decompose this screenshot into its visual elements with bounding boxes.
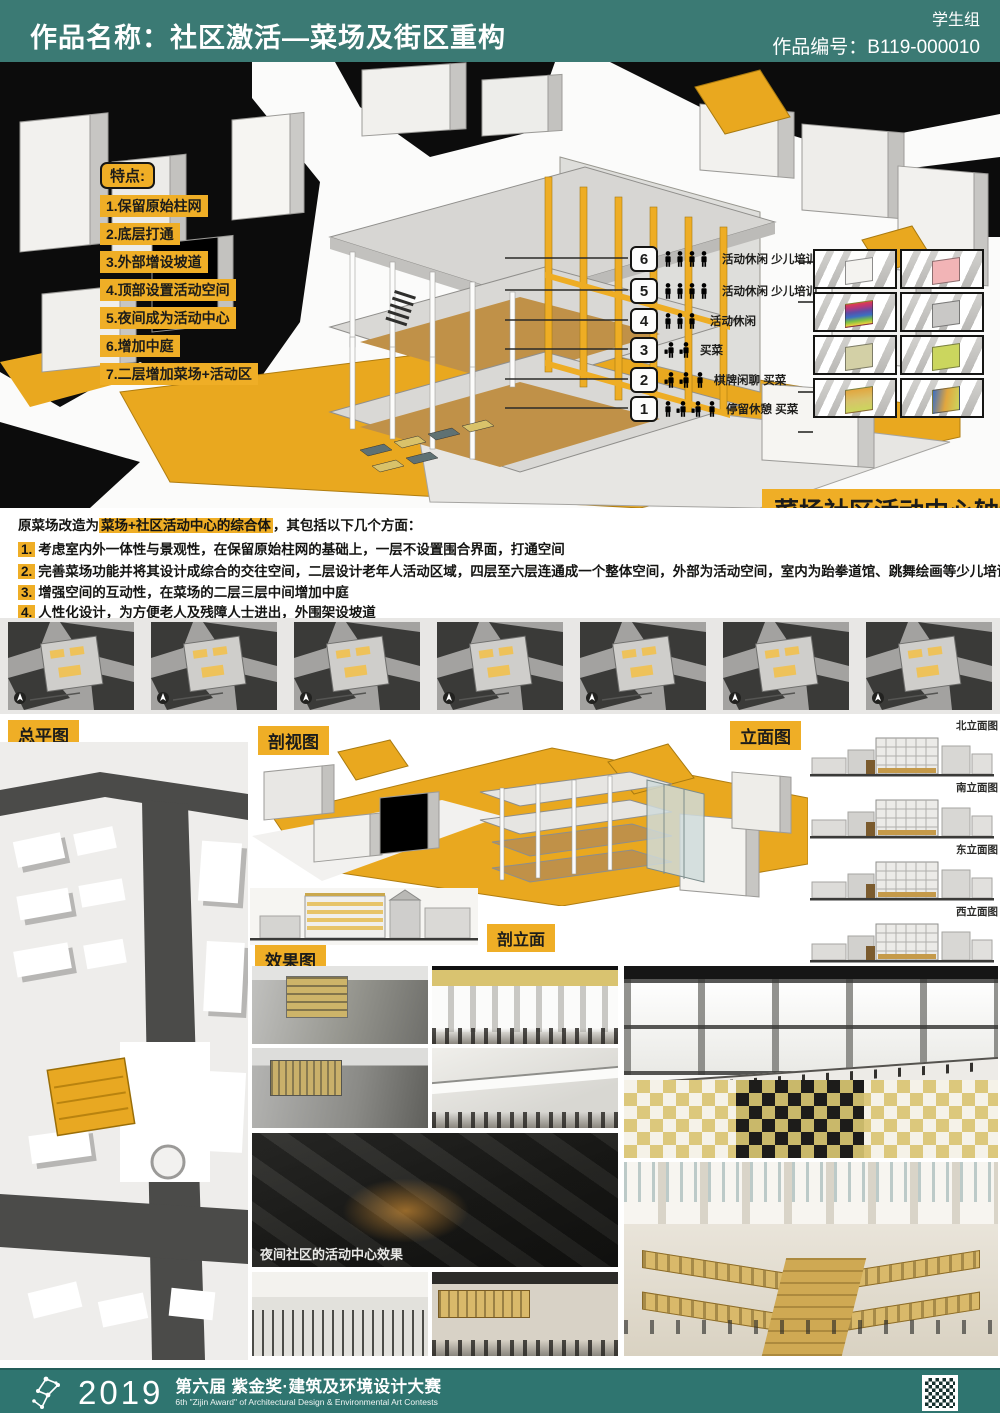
floor-number-badge: 3 bbox=[630, 337, 658, 363]
footer-bar: 2019 第六届 紫金奖·建筑及环境设计大赛 6th "Zijin Award"… bbox=[0, 1368, 1000, 1413]
activity-people-icon bbox=[664, 313, 704, 330]
floor-number-badge: 1 bbox=[630, 396, 658, 422]
intro-highlight: 菜场+社区活动中心的综合体 bbox=[99, 518, 273, 533]
elevation-east: 东立面图 bbox=[808, 842, 1000, 902]
site-diagram bbox=[151, 622, 277, 710]
highlight-mass bbox=[845, 300, 873, 328]
site-diagram bbox=[866, 622, 992, 710]
floor-activity-label: 买菜 bbox=[700, 342, 723, 358]
axon-step-thumbnails bbox=[813, 249, 984, 418]
highlight-mass bbox=[932, 343, 960, 371]
page-title: 作品名称：社区激活—菜场及街区重构 bbox=[30, 16, 506, 55]
elevation-label: 南立面图 bbox=[956, 780, 998, 795]
feature-item: 6.增加中庭 bbox=[100, 335, 180, 357]
shopper-people-icon bbox=[664, 342, 694, 359]
feature-item: 7.二层增加菜场+活动区 bbox=[100, 363, 258, 385]
highlight-mass bbox=[932, 386, 960, 414]
highlight-mass bbox=[932, 257, 960, 285]
axon-thumbnail bbox=[813, 292, 897, 332]
feature-item: 3.外部增设坡道 bbox=[100, 251, 208, 273]
axonometric-panel: 特点: 1.保留原始柱网 2.底层打通 3.外部增设坡道 4.顶部设置活动空间 … bbox=[0, 62, 1000, 508]
floor-number-badge: 6 bbox=[630, 246, 658, 272]
floor-row-5: 5 活动休闲 少儿培训 bbox=[630, 278, 817, 304]
elevation-label: 西立面图 bbox=[956, 904, 998, 919]
axon-thumbnail bbox=[813, 249, 897, 289]
award-logo-icon bbox=[28, 1375, 64, 1411]
floor-number-badge: 2 bbox=[630, 367, 658, 393]
description-point: 2.完善菜场功能并将其设计成综合的交往空间，二层设计老年人活动区域，四层至六层连… bbox=[18, 560, 1000, 580]
axon-thumbnail bbox=[813, 335, 897, 375]
footer-year: 2019 bbox=[78, 1374, 163, 1412]
top-shadow-band bbox=[624, 966, 998, 979]
group-label: 学生组 bbox=[772, 6, 980, 30]
shopper-people-icon bbox=[664, 401, 720, 418]
highlight-mass bbox=[932, 300, 960, 328]
feature-item: 1.保留原始柱网 bbox=[100, 195, 208, 217]
description-point: 3.增强空间的互动性，在菜场的二层三层中间增加中庭 bbox=[18, 581, 349, 601]
highlight-mass bbox=[845, 257, 873, 285]
site-diagram bbox=[580, 622, 706, 710]
walkway-deck bbox=[432, 1066, 618, 1094]
entry-number: 作品编号：B119-000010 bbox=[772, 32, 980, 59]
checkerboard-dark-patch bbox=[736, 1080, 864, 1158]
axon-thumbnail bbox=[813, 378, 897, 418]
market-building-in-photo bbox=[286, 976, 348, 1018]
night-render-caption: 夜间社区的活动中心效果 bbox=[260, 1244, 403, 1263]
crowd-silhouettes bbox=[432, 1028, 618, 1044]
arcade-render bbox=[432, 966, 618, 1044]
site-diagram bbox=[8, 622, 134, 710]
checkerboard-facade-render bbox=[624, 966, 998, 1158]
floor-number-badge: 5 bbox=[630, 278, 658, 304]
competition-title-en: 6th "Zijin Award" of Architectural Desig… bbox=[175, 1398, 441, 1407]
elevation-drawing bbox=[808, 732, 996, 778]
feature-item: 2.底层打通 bbox=[100, 223, 180, 245]
qr-pattern bbox=[925, 1378, 955, 1408]
qr-code bbox=[922, 1375, 958, 1411]
crowd-silhouettes bbox=[432, 1340, 618, 1356]
stall-canopy bbox=[438, 1290, 530, 1318]
colonnade bbox=[432, 986, 618, 1032]
features-title: 特点: bbox=[100, 162, 155, 189]
feature-item: 4.顶部设置活动空间 bbox=[100, 279, 236, 301]
competition-title-cn: 第六届 紫金奖·建筑及环境设计大赛 bbox=[175, 1378, 441, 1396]
railing bbox=[252, 1310, 428, 1356]
site-diagram bbox=[723, 622, 849, 710]
elevation-west: 西立面图 bbox=[808, 904, 1000, 964]
terrace-render bbox=[432, 1048, 618, 1128]
market-crowd-render bbox=[432, 1272, 618, 1356]
floor-activity-label: 停留休憩 买菜 bbox=[726, 401, 798, 417]
street-view-photo bbox=[252, 1048, 428, 1128]
elevation-label: 北立面图 bbox=[956, 718, 998, 733]
elevation-north: 北立面图 bbox=[808, 718, 1000, 778]
floor-row-3: 3 买菜 bbox=[630, 337, 723, 363]
section-elevation-drawing bbox=[250, 888, 478, 945]
axon-thumbnail bbox=[900, 249, 984, 289]
elevation-drawing bbox=[808, 856, 996, 902]
site-plan-map bbox=[0, 742, 248, 1360]
glass-wing bbox=[647, 780, 704, 882]
description-point: 1.考虑室内外一体性与景观性，在保留原始柱网的基础上，一层不设置围合界面，打通空… bbox=[18, 538, 565, 558]
description-intro: 原菜场改造为菜场+社区活动中心的综合体，其包括以下几个方面： bbox=[18, 514, 421, 534]
header-meta: 学生组 作品编号：B119-000010 bbox=[772, 6, 980, 59]
activity-people-icon bbox=[664, 283, 716, 300]
axon-thumbnail bbox=[900, 378, 984, 418]
floor-row-1: 1 停留休憩 买菜 bbox=[630, 396, 798, 422]
description-block: 原菜场改造为菜场+社区活动中心的综合体，其包括以下几个方面： 1.考虑室内外一体… bbox=[0, 508, 1000, 618]
section-perspective bbox=[252, 736, 808, 906]
highlight-mass bbox=[845, 386, 873, 414]
elevation-drawing bbox=[808, 794, 996, 840]
site-diagram bbox=[294, 622, 420, 710]
axon-thumbnail bbox=[900, 292, 984, 332]
floor-activity-label: 棋牌闲聊 买菜 bbox=[714, 372, 786, 388]
highlight-mass bbox=[845, 343, 873, 371]
street-view-photo bbox=[252, 966, 428, 1044]
floor-row-2: 2 棋牌闲聊 买菜 bbox=[630, 367, 786, 393]
floor-activity-label: 活动休闲 bbox=[710, 313, 756, 329]
stall-row bbox=[642, 1250, 794, 1292]
plaza-circle bbox=[152, 1146, 184, 1178]
floor-row-6: 6 活动休闲 少儿培训 bbox=[630, 246, 817, 272]
crowd-silhouettes bbox=[432, 1112, 618, 1128]
section-elevation-label: 剖立面 bbox=[487, 924, 555, 952]
balcony-interior-render bbox=[252, 1272, 428, 1356]
crowd-silhouettes bbox=[624, 1320, 998, 1334]
activity-people-icon bbox=[664, 251, 716, 268]
elevation-south: 南立面图 bbox=[808, 780, 1000, 840]
floor-number-badge: 4 bbox=[630, 308, 658, 334]
market-building-in-photo bbox=[270, 1060, 342, 1096]
market-interior-render bbox=[624, 1162, 998, 1356]
features-list: 特点: 1.保留原始柱网 2.底层打通 3.外部增设坡道 4.顶部设置活动空间 … bbox=[100, 162, 258, 385]
header-bar: 作品名称：社区激活—菜场及街区重构 学生组 作品编号：B119-000010 bbox=[0, 0, 1000, 62]
elevation-label: 东立面图 bbox=[956, 842, 998, 857]
clerestory-glass bbox=[624, 1162, 998, 1202]
footer-titles: 第六届 紫金奖·建筑及环境设计大赛 6th "Zijin Award" of A… bbox=[175, 1378, 441, 1407]
floor-activity-label: 活动休闲 少儿培训 bbox=[722, 283, 817, 299]
night-aerial-render: 夜间社区的活动中心效果 bbox=[252, 1133, 618, 1267]
elevation-drawing bbox=[808, 918, 996, 964]
site-diagram bbox=[437, 622, 563, 710]
floor-row-4: 4 活动休闲 bbox=[630, 308, 756, 334]
poster-board: 作品名称：社区激活—菜场及街区重构 学生组 作品编号：B119-000010 bbox=[0, 0, 1000, 1413]
feature-item: 5.夜间成为活动中心 bbox=[100, 307, 236, 329]
floor-activity-label: 活动休闲 少儿培训 bbox=[722, 251, 817, 267]
shopper-people-icon bbox=[664, 372, 708, 389]
plan-diagram-strip bbox=[0, 618, 1000, 714]
axon-thumbnail bbox=[900, 335, 984, 375]
market-building-footprint bbox=[47, 1058, 134, 1135]
